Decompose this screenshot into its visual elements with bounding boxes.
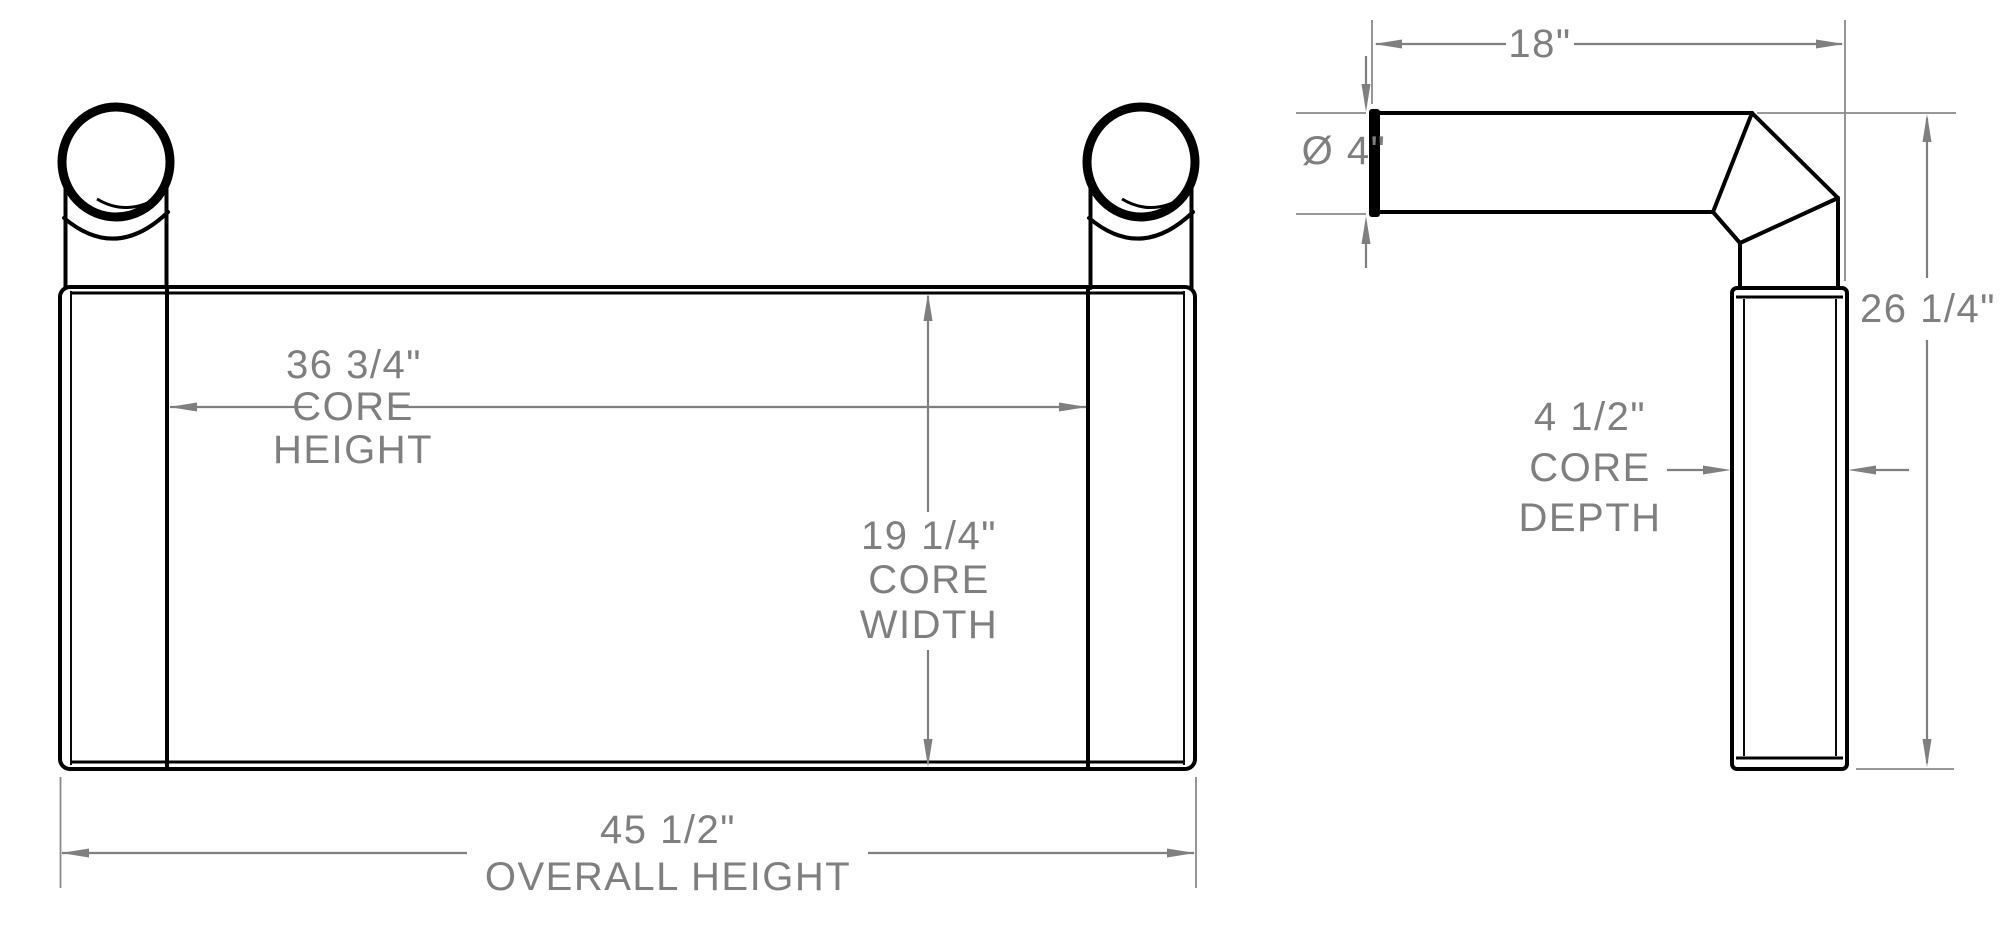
core-depth-value: 4 1/2"	[1534, 395, 1646, 439]
front-view: 36 3/4" CORE HEIGHT 19 1/4" CORE WIDTH 4…	[60, 107, 1196, 899]
arrowhead-down	[1362, 84, 1371, 112]
dim-core-depth: 4 1/2" CORE DEPTH	[1518, 395, 1909, 540]
arrowhead-up	[1362, 216, 1371, 244]
pipe-diameter-value: Ø 4"	[1302, 129, 1387, 173]
arrowhead-up	[924, 293, 933, 321]
arrowhead-right	[1816, 40, 1844, 49]
pipe-length-value: 18"	[1508, 22, 1571, 66]
core-depth-label-2: DEPTH	[1518, 496, 1661, 540]
arrowhead-down	[1923, 739, 1932, 767]
arrowhead-left	[61, 849, 89, 858]
dim-core-width: 19 1/4" CORE WIDTH	[860, 293, 999, 767]
core-width-value: 19 1/4"	[861, 514, 997, 558]
core-width-label-2: WIDTH	[860, 603, 999, 647]
front-right-inlet-pipe	[1087, 107, 1195, 288]
dim-pipe-length: 18"	[1374, 22, 1844, 66]
core-height-label-1: CORE	[292, 385, 414, 429]
dim-pipe-diameter: Ø 4"	[1302, 56, 1387, 268]
arrowhead-right	[1059, 403, 1087, 412]
arrowhead-up	[1923, 114, 1932, 142]
elbow-outer-edge	[1752, 113, 1838, 198]
column-outline	[1732, 288, 1847, 769]
overall-height-label: OVERALL HEIGHT	[485, 855, 851, 899]
side-view: 18" Ø 4" 26 1/4" 4 1/2" CORE DEPTH	[1296, 20, 1996, 769]
arrowhead-left	[169, 403, 197, 412]
miter-joint-2	[1740, 198, 1838, 243]
arrowhead-right	[1703, 466, 1731, 475]
core-height-value: 36 3/4"	[286, 343, 422, 387]
core-width-label-1: CORE	[868, 558, 990, 602]
core-depth-label-1: CORE	[1529, 446, 1651, 490]
overall-height-value: 45 1/2"	[600, 808, 736, 852]
dim-overall-height: 45 1/2" OVERALL HEIGHT	[61, 777, 1197, 899]
elbow-inner-edge	[1713, 212, 1740, 243]
core-height-label-2: HEIGHT	[273, 428, 433, 472]
technical-drawing-page: 36 3/4" CORE HEIGHT 19 1/4" CORE WIDTH 4…	[0, 0, 2012, 930]
front-left-inlet-pipe	[62, 107, 170, 288]
side-elbow-pipe	[1369, 109, 1838, 288]
miter-joint-1	[1713, 113, 1752, 212]
drawing-svg: 36 3/4" CORE HEIGHT 19 1/4" CORE WIDTH 4…	[0, 0, 2012, 930]
front-outline	[60, 287, 1195, 769]
arrowhead-left	[1848, 466, 1876, 475]
arrowhead-right	[1167, 849, 1195, 858]
arrowhead-left	[1374, 40, 1402, 49]
overall-width-value: 26 1/4"	[1860, 287, 1996, 331]
dim-core-height: 36 3/4" CORE HEIGHT	[169, 343, 1087, 472]
dim-overall-width: 26 1/4"	[1860, 114, 1996, 767]
side-core-column	[1732, 288, 1847, 769]
